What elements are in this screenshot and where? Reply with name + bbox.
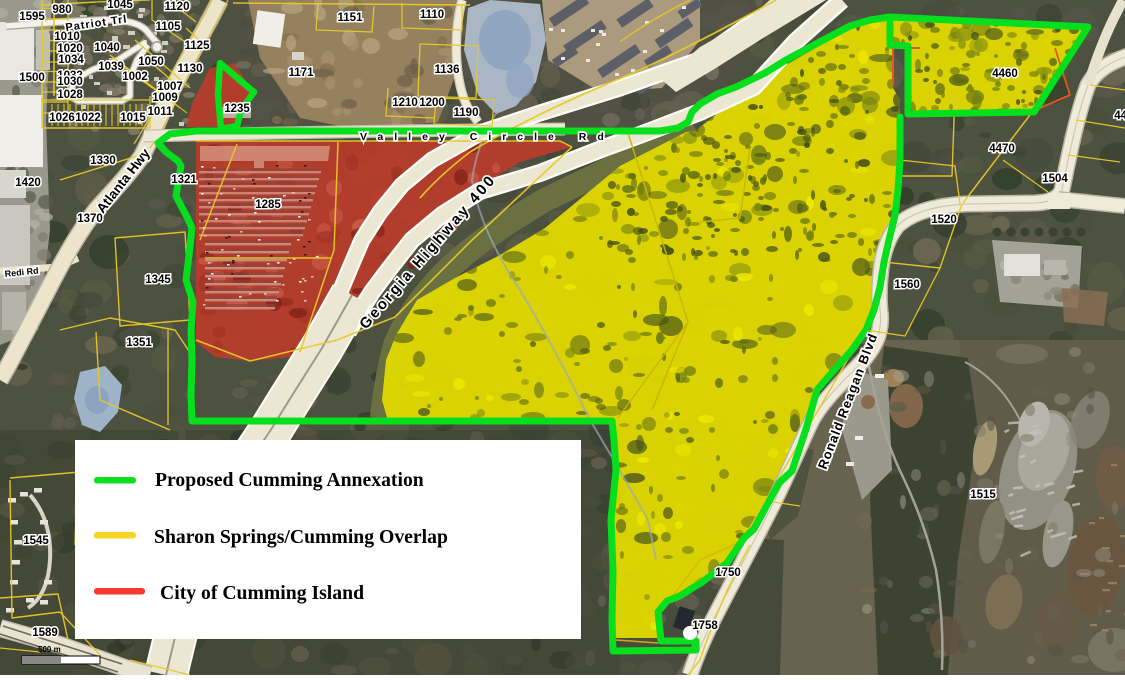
svg-text:1171: 1171 [289, 67, 315, 79]
svg-text:1110: 1110 [420, 9, 444, 21]
svg-text:1028: 1028 [57, 89, 83, 101]
svg-text:Proposed Cumming Annexation: Proposed Cumming Annexation [155, 469, 424, 491]
svg-text:1030: 1030 [57, 76, 83, 88]
svg-text:1589: 1589 [32, 627, 58, 639]
svg-text:1136: 1136 [435, 64, 460, 76]
svg-text:980: 980 [52, 4, 71, 16]
svg-text:1321: 1321 [171, 174, 197, 186]
svg-text:1595: 1595 [19, 11, 45, 23]
svg-text:500 m: 500 m [38, 645, 61, 654]
svg-text:1120: 1120 [165, 1, 190, 13]
svg-text:1190: 1190 [454, 107, 479, 119]
svg-text:1011: 1011 [148, 106, 174, 118]
svg-text:1330: 1330 [90, 155, 116, 167]
svg-text:1015: 1015 [120, 112, 146, 124]
svg-text:1105: 1105 [156, 21, 182, 33]
svg-text:1040: 1040 [94, 42, 120, 54]
svg-text:4460: 4460 [992, 68, 1018, 80]
svg-text:Valley Circle Rd: Valley Circle Rd [360, 131, 615, 143]
svg-text:1009: 1009 [152, 92, 178, 104]
svg-text:1520: 1520 [931, 214, 957, 226]
svg-text:1235: 1235 [224, 103, 250, 115]
svg-text:1125: 1125 [185, 40, 211, 52]
svg-text:1285: 1285 [255, 199, 281, 211]
svg-text:1420: 1420 [15, 177, 41, 189]
svg-text:1750: 1750 [715, 567, 741, 579]
svg-text:4470: 4470 [989, 143, 1015, 155]
svg-text:1050: 1050 [138, 56, 164, 68]
svg-text:1039: 1039 [98, 61, 124, 73]
svg-text:1002: 1002 [122, 71, 148, 83]
svg-text:1500: 1500 [19, 72, 45, 84]
svg-text:1504: 1504 [1042, 173, 1068, 185]
svg-text:1022: 1022 [75, 112, 101, 124]
svg-text:1758: 1758 [692, 620, 718, 632]
svg-text:1130: 1130 [178, 63, 203, 75]
svg-text:1200: 1200 [419, 97, 445, 109]
svg-text:City of Cumming Island: City of Cumming Island [160, 582, 364, 604]
svg-text:1351: 1351 [126, 337, 152, 349]
svg-text:Sharon Springs/Cumming Overlap: Sharon Springs/Cumming Overlap [154, 526, 448, 548]
svg-text:1515: 1515 [970, 489, 996, 501]
svg-text:1545: 1545 [23, 535, 49, 547]
svg-text:1345: 1345 [145, 274, 171, 286]
svg-text:1151: 1151 [338, 12, 364, 24]
svg-text:1210: 1210 [392, 97, 418, 109]
svg-text:1026: 1026 [49, 112, 75, 124]
svg-text:1560: 1560 [894, 279, 920, 291]
svg-text:4480: 4480 [1114, 110, 1125, 122]
svg-text:1045: 1045 [107, 0, 133, 11]
svg-text:1370: 1370 [77, 213, 103, 225]
svg-text:1034: 1034 [58, 54, 84, 66]
